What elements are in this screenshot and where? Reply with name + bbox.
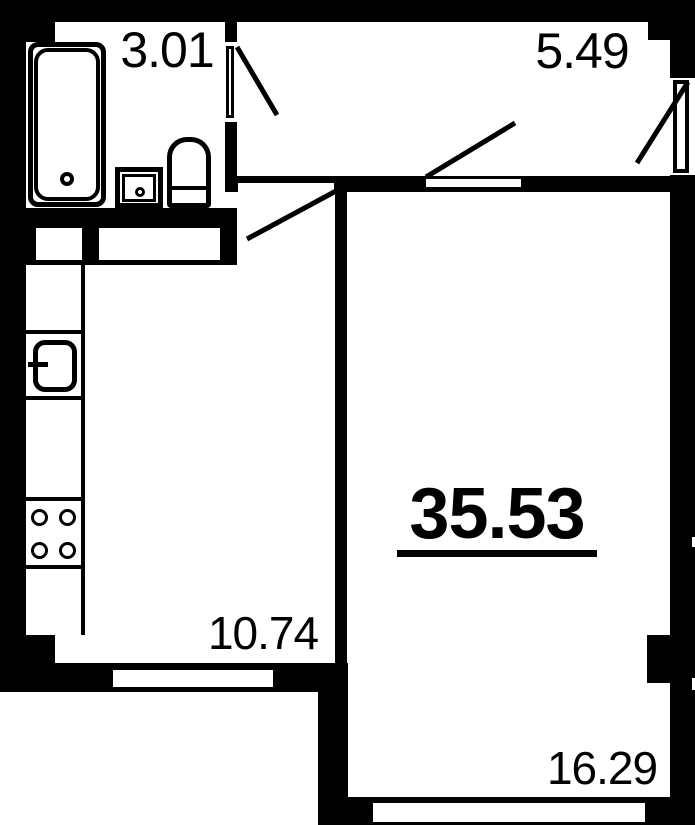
- bathroom-door-leaf: [226, 46, 234, 118]
- wall-top: [0, 0, 695, 22]
- wall-kitchen-corner-block: [22, 635, 55, 663]
- bathroom-door-swing: [237, 47, 277, 115]
- toilet-icon: [167, 137, 211, 208]
- stove-burner-icon: [31, 542, 48, 559]
- wall-bathroom-right-upper: [225, 22, 237, 42]
- kitchen-door-swing: [247, 191, 336, 239]
- floor-plan: 3.01 5.49 10.74 16.29 35.53: [0, 0, 695, 825]
- entrance-door-leaf: [673, 80, 689, 173]
- living-room-doorway: [426, 179, 521, 187]
- bathtub-drain-icon: [60, 172, 74, 186]
- wall-pier-top-left: [22, 22, 55, 42]
- wall-right-main: [670, 175, 695, 825]
- washbasin-drain-icon: [135, 187, 145, 197]
- wall-pier-right: [647, 635, 670, 683]
- duct-shaft-small: [36, 228, 82, 260]
- wall-kitchen-living-separator: [335, 192, 347, 667]
- hallway-area-label: 5.49: [535, 26, 628, 76]
- wall-right-upper: [670, 22, 695, 78]
- duct-shaft-large: [99, 228, 220, 260]
- counter-divider-3: [26, 497, 85, 501]
- stove-burner-icon: [31, 509, 48, 526]
- wall-living-left: [318, 692, 348, 797]
- living-room-window: [373, 803, 645, 822]
- wall-left: [0, 0, 26, 692]
- kitchen-tap-icon: [28, 362, 48, 367]
- wall-bathroom-right-lower: [225, 122, 237, 176]
- stove-burner-icon: [59, 542, 76, 559]
- counter-divider-4: [26, 565, 85, 569]
- kitchen-doorway: [238, 183, 334, 192]
- living-room-door-swing: [426, 123, 515, 177]
- toilet-seat-line: [169, 186, 209, 190]
- total-area-underline: [397, 550, 597, 557]
- counter-divider-1: [26, 330, 85, 334]
- counter-edge-line: [81, 265, 85, 635]
- counter-divider-2: [26, 396, 85, 400]
- kitchen-area-label: 10.74: [208, 610, 318, 656]
- total-area-label: 35.53: [409, 478, 584, 550]
- kitchen-window: [113, 670, 273, 687]
- stove-burner-icon: [59, 509, 76, 526]
- bathroom-area-label: 3.01: [120, 25, 213, 75]
- living-room-area-label: 16.29: [547, 745, 657, 791]
